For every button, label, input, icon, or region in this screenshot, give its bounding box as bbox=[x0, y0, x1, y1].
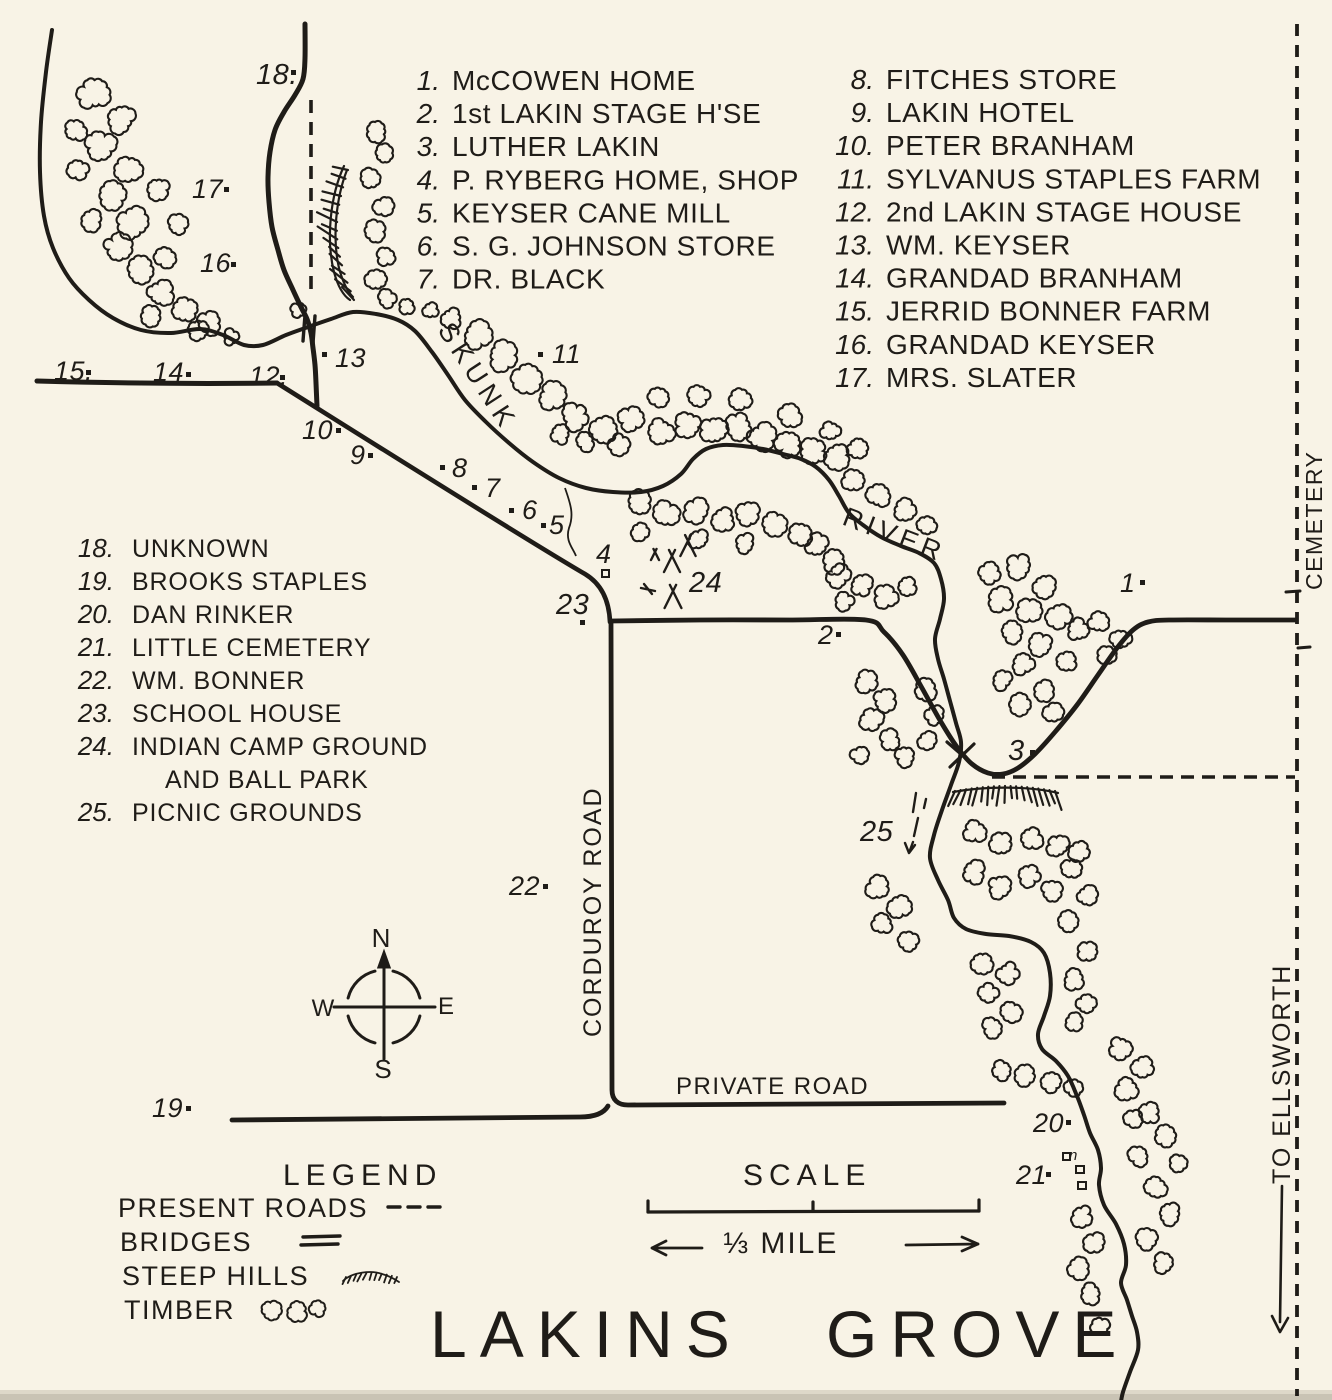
svg-text:7: 7 bbox=[485, 473, 501, 503]
svg-text:8.: 8. bbox=[851, 64, 874, 95]
svg-text:SYLVANUS STAPLES FARM: SYLVANUS STAPLES FARM bbox=[886, 163, 1261, 194]
svg-text:BROOKS STAPLES: BROOKS STAPLES bbox=[132, 568, 368, 596]
svg-text:17.: 17. bbox=[835, 362, 874, 393]
svg-text:3: 3 bbox=[1008, 735, 1025, 767]
svg-text:DR. BLACK: DR. BLACK bbox=[452, 264, 605, 295]
svg-text:20: 20 bbox=[1032, 1108, 1064, 1138]
svg-text:WM. KEYSER: WM. KEYSER bbox=[886, 230, 1071, 261]
svg-text:GRANDAD BRANHAM: GRANDAD BRANHAM bbox=[886, 263, 1183, 294]
svg-text:13.: 13. bbox=[835, 230, 874, 261]
svg-text:16: 16 bbox=[200, 248, 232, 278]
svg-text:19: 19 bbox=[152, 1093, 183, 1123]
svg-text:4.: 4. bbox=[417, 164, 440, 195]
svg-text:LITTLE CEMETERY: LITTLE CEMETERY bbox=[132, 634, 371, 662]
svg-text:11.: 11. bbox=[837, 163, 874, 194]
svg-text:1.: 1. bbox=[417, 65, 440, 96]
svg-text:16.: 16. bbox=[835, 329, 874, 360]
svg-text:17: 17 bbox=[192, 174, 224, 204]
svg-text:25.: 25. bbox=[77, 797, 114, 827]
svg-text:1st LAKIN STAGE H'SE: 1st LAKIN STAGE H'SE bbox=[452, 98, 761, 129]
svg-text:19.: 19. bbox=[78, 566, 114, 596]
svg-text:11: 11 bbox=[552, 339, 581, 369]
svg-text:23: 23 bbox=[555, 589, 589, 621]
svg-text:10: 10 bbox=[302, 415, 333, 445]
svg-text:W: W bbox=[312, 995, 335, 1022]
svg-text:TO ELLSWORTH: TO ELLSWORTH bbox=[1268, 964, 1296, 1184]
svg-text:TIMBER: TIMBER bbox=[124, 1295, 235, 1325]
svg-text:2: 2 bbox=[817, 620, 834, 650]
svg-text:10.: 10. bbox=[835, 130, 874, 161]
svg-text:LAKIN HOTEL: LAKIN HOTEL bbox=[886, 97, 1075, 128]
svg-text:4: 4 bbox=[596, 539, 612, 569]
svg-text:E: E bbox=[438, 993, 454, 1020]
svg-text:22.: 22. bbox=[77, 665, 114, 695]
svg-text:13: 13 bbox=[335, 343, 366, 373]
svg-text:GRANDAD KEYSER: GRANDAD KEYSER bbox=[886, 329, 1156, 360]
svg-text:24.: 24. bbox=[77, 731, 114, 761]
svg-text:24: 24 bbox=[688, 567, 722, 599]
svg-text:21.: 21. bbox=[77, 632, 114, 662]
svg-text:KEYSER CANE MILL: KEYSER CANE MILL bbox=[452, 197, 731, 228]
svg-text:PETER BRANHAM: PETER BRANHAM bbox=[886, 130, 1135, 161]
svg-text:1: 1 bbox=[1120, 568, 1136, 598]
svg-text:GROVE: GROVE bbox=[826, 1297, 1129, 1371]
svg-text:12.: 12. bbox=[835, 196, 874, 227]
svg-text:7.: 7. bbox=[417, 264, 440, 295]
svg-text:20.: 20. bbox=[77, 599, 114, 629]
svg-text:PRESENT ROADS: PRESENT ROADS bbox=[118, 1193, 368, 1223]
svg-text:LEGEND: LEGEND bbox=[283, 1159, 442, 1192]
svg-text:14: 14 bbox=[153, 357, 184, 387]
svg-text:P. RYBERG HOME, SHOP: P. RYBERG HOME, SHOP bbox=[452, 164, 799, 195]
svg-text:SCHOOL HOUSE: SCHOOL HOUSE bbox=[132, 700, 342, 728]
svg-text:UNKNOWN: UNKNOWN bbox=[132, 535, 270, 563]
svg-text:8: 8 bbox=[452, 453, 468, 483]
svg-text:PICNIC GROUNDS: PICNIC GROUNDS bbox=[132, 799, 363, 827]
svg-text:9.: 9. bbox=[851, 97, 874, 128]
svg-text:LAKINS: LAKINS bbox=[430, 1297, 743, 1371]
svg-text:23.: 23. bbox=[77, 698, 114, 728]
svg-text:21: 21 bbox=[1015, 1160, 1047, 1190]
svg-text:18.: 18. bbox=[78, 533, 114, 563]
svg-text:2nd LAKIN STAGE HOUSE: 2nd LAKIN STAGE HOUSE bbox=[886, 196, 1242, 227]
svg-text:MRS. SLATER: MRS. SLATER bbox=[886, 362, 1077, 393]
svg-text:3.: 3. bbox=[417, 131, 440, 162]
svg-text:FITCHES STORE: FITCHES STORE bbox=[886, 64, 1117, 95]
svg-text:JERRID BONNER FARM: JERRID BONNER FARM bbox=[886, 296, 1211, 327]
svg-text:INDIAN CAMP GROUND: INDIAN CAMP GROUND bbox=[132, 733, 428, 761]
svg-text:WM. BONNER: WM. BONNER bbox=[132, 667, 305, 695]
svg-text:BRIDGES: BRIDGES bbox=[120, 1227, 252, 1257]
svg-text:5.: 5. bbox=[417, 197, 440, 228]
svg-text:15.: 15. bbox=[835, 296, 874, 327]
svg-text:CEMETERY: CEMETERY bbox=[1301, 451, 1327, 590]
svg-text:⅓ MILE: ⅓ MILE bbox=[723, 1227, 838, 1260]
svg-text:CORDUROY ROAD: CORDUROY ROAD bbox=[579, 786, 607, 1037]
svg-text:6.: 6. bbox=[417, 231, 440, 262]
svg-text:AND BALL PARK: AND BALL PARK bbox=[165, 766, 369, 794]
svg-text:14.: 14. bbox=[835, 263, 874, 294]
svg-text:22: 22 bbox=[508, 871, 540, 901]
svg-text:DAN RINKER: DAN RINKER bbox=[132, 601, 294, 629]
svg-text:LUTHER LAKIN: LUTHER LAKIN bbox=[452, 131, 660, 162]
svg-text:6: 6 bbox=[522, 495, 538, 525]
svg-text:N: N bbox=[372, 923, 391, 953]
svg-text:McCOWEN HOME: McCOWEN HOME bbox=[452, 65, 696, 96]
svg-text:S. G. JOHNSON STORE: S. G. JOHNSON STORE bbox=[452, 231, 776, 262]
svg-text:9: 9 bbox=[350, 440, 366, 470]
svg-text:2.: 2. bbox=[416, 98, 440, 129]
svg-text:25: 25 bbox=[859, 816, 894, 848]
svg-text:5: 5 bbox=[549, 510, 565, 540]
svg-text:SCALE: SCALE bbox=[743, 1159, 871, 1192]
svg-text:STEEP HILLS: STEEP HILLS bbox=[122, 1261, 309, 1291]
svg-text:PRIVATE ROAD: PRIVATE ROAD bbox=[676, 1073, 869, 1100]
svg-text:S: S bbox=[374, 1054, 391, 1084]
svg-text:n: n bbox=[1069, 1147, 1078, 1164]
